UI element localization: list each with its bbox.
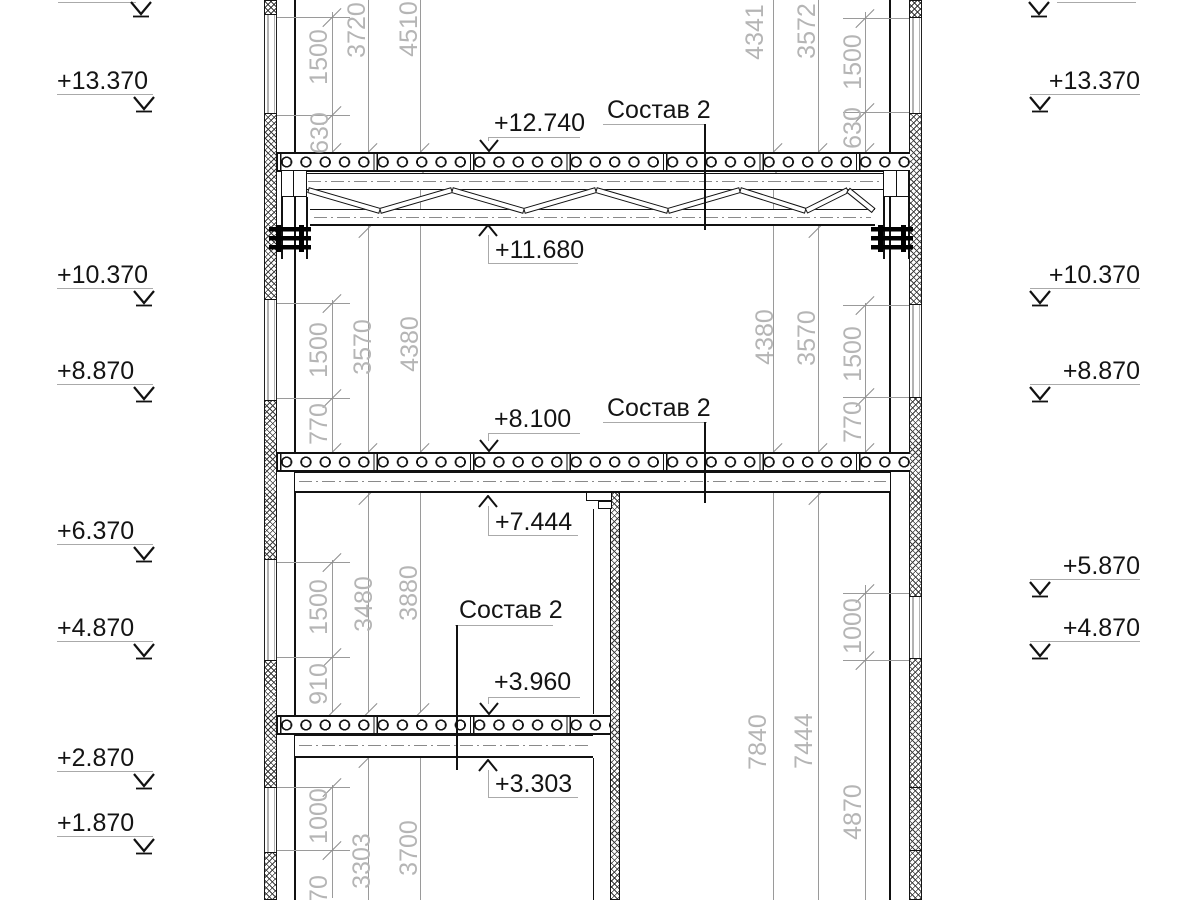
dimension-chain-line bbox=[818, 493, 819, 900]
level-arrow-icon bbox=[477, 224, 499, 237]
level-callout-text: +8.100 bbox=[494, 406, 571, 432]
composition-label-text: Состав 2 bbox=[459, 597, 563, 623]
left-wall-hatch bbox=[264, 852, 277, 900]
interior-wall-hatch bbox=[610, 470, 620, 900]
bolt-connection-icon bbox=[269, 225, 311, 252]
dimension-text: 630 bbox=[307, 88, 333, 178]
truss-top-chord bbox=[281, 173, 893, 190]
dimension-text: 3720 bbox=[344, 0, 370, 75]
elevation-mark-right-text: +10.370 bbox=[1043, 262, 1140, 288]
dimension-text: 3303 bbox=[349, 816, 375, 900]
level-arrow-icon bbox=[1027, 580, 1053, 598]
composition-leader-line bbox=[704, 422, 706, 503]
bolt-connection-icon-glyph bbox=[871, 225, 913, 252]
dimension-chain-line bbox=[773, 0, 774, 152]
level-arrow-icon bbox=[477, 759, 499, 772]
left-wall-hatch bbox=[264, 113, 277, 300]
left-wall-window-opening bbox=[264, 788, 277, 852]
dimension-text: 770 bbox=[306, 379, 332, 469]
composition-leader-line bbox=[456, 625, 458, 770]
level-arrow-icon bbox=[131, 545, 157, 563]
level-arrow-icon-glyph bbox=[1027, 580, 1053, 598]
composition-label-underline bbox=[603, 124, 706, 125]
level-arrow-icon bbox=[131, 772, 157, 790]
dimension-text: 3880 bbox=[396, 548, 422, 638]
interior-wall-face-line bbox=[593, 758, 594, 900]
elevation-mark-right-text: +5.870 bbox=[1043, 553, 1140, 579]
centerline bbox=[299, 745, 589, 746]
elevation-mark-left-text: +2.870 bbox=[57, 745, 134, 771]
dimension-text: 7444 bbox=[791, 696, 817, 786]
elevation-mark-right-text: +13.370 bbox=[1043, 68, 1140, 94]
centerline bbox=[314, 217, 871, 218]
level-arrow-icon-glyph bbox=[478, 702, 500, 715]
dimension-text: 7840 bbox=[745, 697, 771, 787]
right-wall-hatch bbox=[909, 0, 922, 18]
elevation-mark-left-text: +10.370 bbox=[57, 262, 148, 288]
elevation-mark-left-text: +4.870 bbox=[57, 615, 134, 641]
composition-label-text: Состав 2 bbox=[607, 97, 711, 123]
truss-support-left-divider bbox=[293, 170, 294, 197]
level-callout-underline bbox=[488, 137, 580, 138]
dimension-text: 3570 bbox=[350, 302, 376, 392]
composition-leader-line bbox=[704, 124, 706, 230]
centerline bbox=[285, 181, 889, 182]
floor-slab-8100 bbox=[277, 452, 910, 472]
level-callout-underline bbox=[488, 697, 580, 698]
elevation-mark-underline bbox=[1057, 2, 1136, 3]
level-arrow-icon-glyph bbox=[478, 139, 500, 152]
dimension-text: 910 bbox=[306, 639, 332, 729]
level-arrow-icon bbox=[477, 495, 499, 508]
truss-support-right-divider bbox=[896, 170, 897, 197]
elevation-mark-left-text: +8.870 bbox=[57, 358, 134, 384]
dimension-text: 4870 bbox=[840, 767, 866, 857]
dimension-text: 3700 bbox=[396, 803, 422, 893]
level-arrow-icon bbox=[131, 95, 157, 113]
dimension-text: 770 bbox=[840, 377, 866, 467]
level-arrow-icon-glyph bbox=[131, 642, 157, 660]
level-arrow-icon-glyph bbox=[1027, 95, 1053, 113]
left-wall-window-opening bbox=[264, 560, 277, 660]
right-wall-window-opening bbox=[909, 18, 922, 113]
right-wall-joint-line bbox=[909, 850, 922, 851]
dimension-text: 3572 bbox=[794, 0, 820, 76]
elevation-mark-left-text: +13.370 bbox=[57, 68, 148, 94]
level-arrow-icon bbox=[1027, 385, 1053, 403]
dimension-text: 970 bbox=[306, 851, 332, 900]
level-arrow-icon-glyph bbox=[1027, 289, 1053, 307]
right-wall-window-opening bbox=[909, 597, 922, 658]
dimension-chain-line bbox=[773, 470, 774, 900]
level-callout-text: +3.960 bbox=[494, 669, 571, 695]
level-callout-text: +12.740 bbox=[494, 110, 585, 136]
dimension-text: 630 bbox=[840, 83, 866, 173]
elevation-mark-left-text: +6.370 bbox=[57, 518, 134, 544]
floor-slab-12740 bbox=[277, 152, 910, 172]
dimension-text: 4380 bbox=[752, 292, 778, 382]
level-arrow-icon-glyph bbox=[131, 385, 157, 403]
interior-wall-corbel-step bbox=[598, 501, 612, 509]
level-arrow-icon bbox=[131, 289, 157, 307]
beam-under-8100 bbox=[295, 472, 890, 493]
right-wall-window-opening bbox=[909, 305, 922, 397]
level-callout-text: +7.444 bbox=[495, 509, 572, 535]
elevation-mark-right-text: +4.870 bbox=[1043, 615, 1140, 641]
level-arrow-icon bbox=[478, 702, 500, 715]
level-arrow-icon-glyph bbox=[477, 495, 499, 508]
left-wall-window-opening bbox=[264, 300, 277, 400]
interior-wall-corbel bbox=[586, 492, 612, 501]
level-arrow-icon-glyph bbox=[131, 289, 157, 307]
level-arrow-icon bbox=[478, 439, 500, 452]
level-callout-underline bbox=[488, 535, 578, 536]
level-arrow-icon-glyph bbox=[128, 0, 154, 18]
truss-bottom-chord bbox=[310, 209, 875, 226]
right-wall-inner-face-line bbox=[889, 0, 891, 900]
right-wall-joint-line bbox=[909, 787, 922, 788]
level-arrow-icon-glyph bbox=[131, 772, 157, 790]
level-arrow-icon bbox=[1026, 0, 1052, 18]
level-arrow-icon-glyph bbox=[477, 224, 499, 237]
dimension-text: 1000 bbox=[306, 771, 332, 861]
level-arrow-icon bbox=[478, 139, 500, 152]
level-callout-underline bbox=[488, 433, 580, 434]
level-arrow-icon bbox=[1027, 289, 1053, 307]
dimension-text: 4380 bbox=[397, 299, 423, 389]
section-drawing-canvas: +13.370+10.370+8.870+6.370+4.870+2.870+1… bbox=[0, 0, 1200, 900]
extension-line bbox=[277, 303, 350, 304]
level-arrow-icon-glyph bbox=[131, 545, 157, 563]
left-wall-inner-face-line bbox=[294, 0, 296, 900]
level-callout-stub bbox=[488, 770, 489, 797]
level-arrow-icon-glyph bbox=[1027, 642, 1053, 660]
level-arrow-icon-glyph bbox=[131, 837, 157, 855]
extension-line bbox=[843, 305, 909, 306]
interior-wall-face-line bbox=[593, 509, 594, 714]
elevation-mark-right-text: +8.870 bbox=[1043, 358, 1140, 384]
level-arrow-icon bbox=[128, 0, 154, 18]
composition-label-underline bbox=[455, 625, 553, 626]
left-wall-hatch bbox=[264, 400, 277, 560]
level-arrow-icon bbox=[131, 385, 157, 403]
dimension-text: 3480 bbox=[351, 559, 377, 649]
right-wall-hatch bbox=[909, 397, 922, 597]
dimension-text: 4510 bbox=[396, 0, 422, 74]
composition-label-underline bbox=[603, 422, 707, 423]
right-wall-hatch bbox=[909, 113, 922, 305]
bolt-connection-icon bbox=[871, 225, 913, 252]
dimension-text: 4341 bbox=[742, 0, 768, 77]
left-wall-window-opening bbox=[264, 15, 277, 113]
beam-under-3960 bbox=[295, 735, 593, 758]
level-arrow-icon-glyph bbox=[478, 439, 500, 452]
level-arrow-icon-glyph bbox=[477, 759, 499, 772]
elevation-mark-left-text: +1.870 bbox=[57, 810, 134, 836]
left-wall-hatch bbox=[264, 0, 277, 15]
dimension-text: 3570 bbox=[794, 293, 820, 383]
level-arrow-icon bbox=[131, 642, 157, 660]
composition-label-text: Состав 2 bbox=[607, 395, 711, 421]
level-arrow-icon-glyph bbox=[131, 95, 157, 113]
level-callout-underline bbox=[488, 797, 578, 798]
level-arrow-icon bbox=[1027, 642, 1053, 660]
level-callout-text: +3.303 bbox=[495, 771, 572, 797]
bolt-connection-icon-glyph bbox=[269, 225, 311, 252]
centerline bbox=[299, 481, 886, 482]
level-arrow-icon bbox=[1027, 95, 1053, 113]
level-callout-stub bbox=[488, 506, 489, 535]
level-arrow-icon-glyph bbox=[1026, 0, 1052, 18]
elevation-mark-underline bbox=[58, 2, 136, 3]
level-callout-underline bbox=[488, 263, 578, 264]
left-wall-hatch bbox=[264, 660, 277, 788]
dimension-text: 1000 bbox=[840, 581, 866, 671]
right-wall-hatch bbox=[909, 658, 922, 900]
level-arrow-icon-glyph bbox=[1027, 385, 1053, 403]
level-callout-stub bbox=[488, 235, 489, 263]
level-callout-text: +11.680 bbox=[495, 237, 584, 263]
level-arrow-icon bbox=[131, 837, 157, 855]
